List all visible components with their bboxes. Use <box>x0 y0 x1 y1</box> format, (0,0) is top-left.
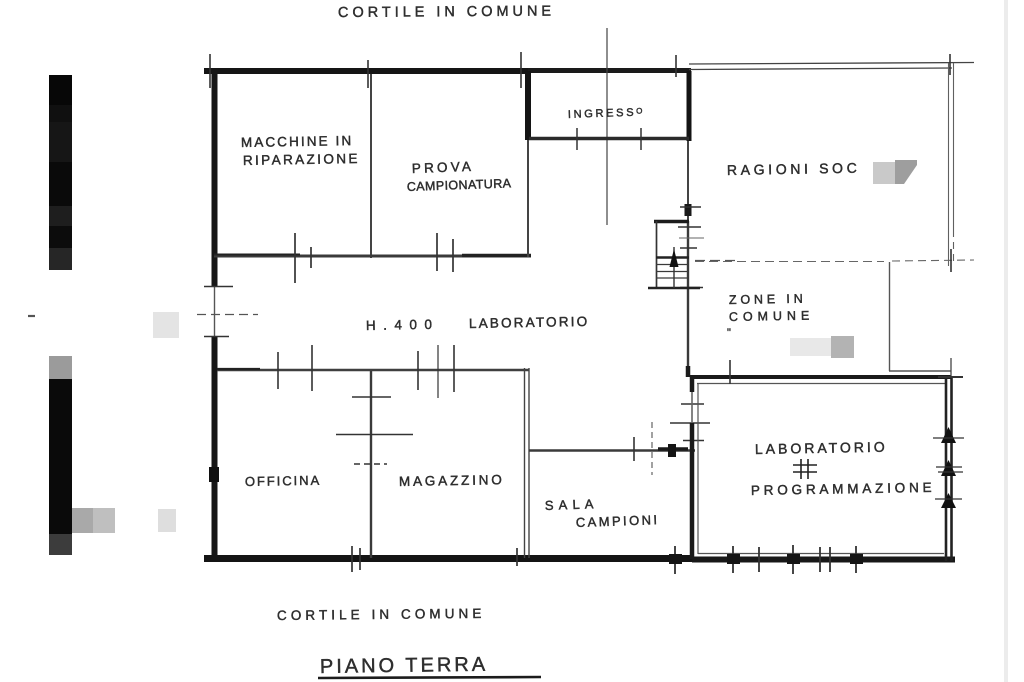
svg-text:PIANO TERRA: PIANO TERRA <box>320 654 489 678</box>
svg-text:OFFICINA: OFFICINA <box>245 473 321 489</box>
svg-text:PROVA: PROVA <box>412 159 475 176</box>
svg-text:COMUNE: COMUNE <box>729 309 815 324</box>
svg-text:CORTILE IN COMUNE: CORTILE IN COMUNE <box>338 3 555 21</box>
svg-text:H.400: H.400 <box>366 317 440 333</box>
svg-text:CAMPIONI: CAMPIONI <box>576 512 660 530</box>
svg-text:CORTILE IN COMUNE: CORTILE IN COMUNE <box>277 606 486 623</box>
svg-text:": " <box>727 327 731 339</box>
svg-text:RIPARAZIONE: RIPARAZIONE <box>243 151 360 168</box>
svg-text:ZONE IN: ZONE IN <box>729 292 807 307</box>
svg-text:LABORATORIO: LABORATORIO <box>469 314 590 331</box>
svg-text:MAGAZZINO: MAGAZZINO <box>399 472 505 489</box>
svg-text:MACCHINE IN: MACCHINE IN <box>241 133 354 150</box>
svg-text:SALA: SALA <box>545 496 599 513</box>
svg-text:RAGIONI SOC: RAGIONI SOC <box>727 160 861 178</box>
svg-text:LABORATORIO: LABORATORIO <box>755 439 888 457</box>
